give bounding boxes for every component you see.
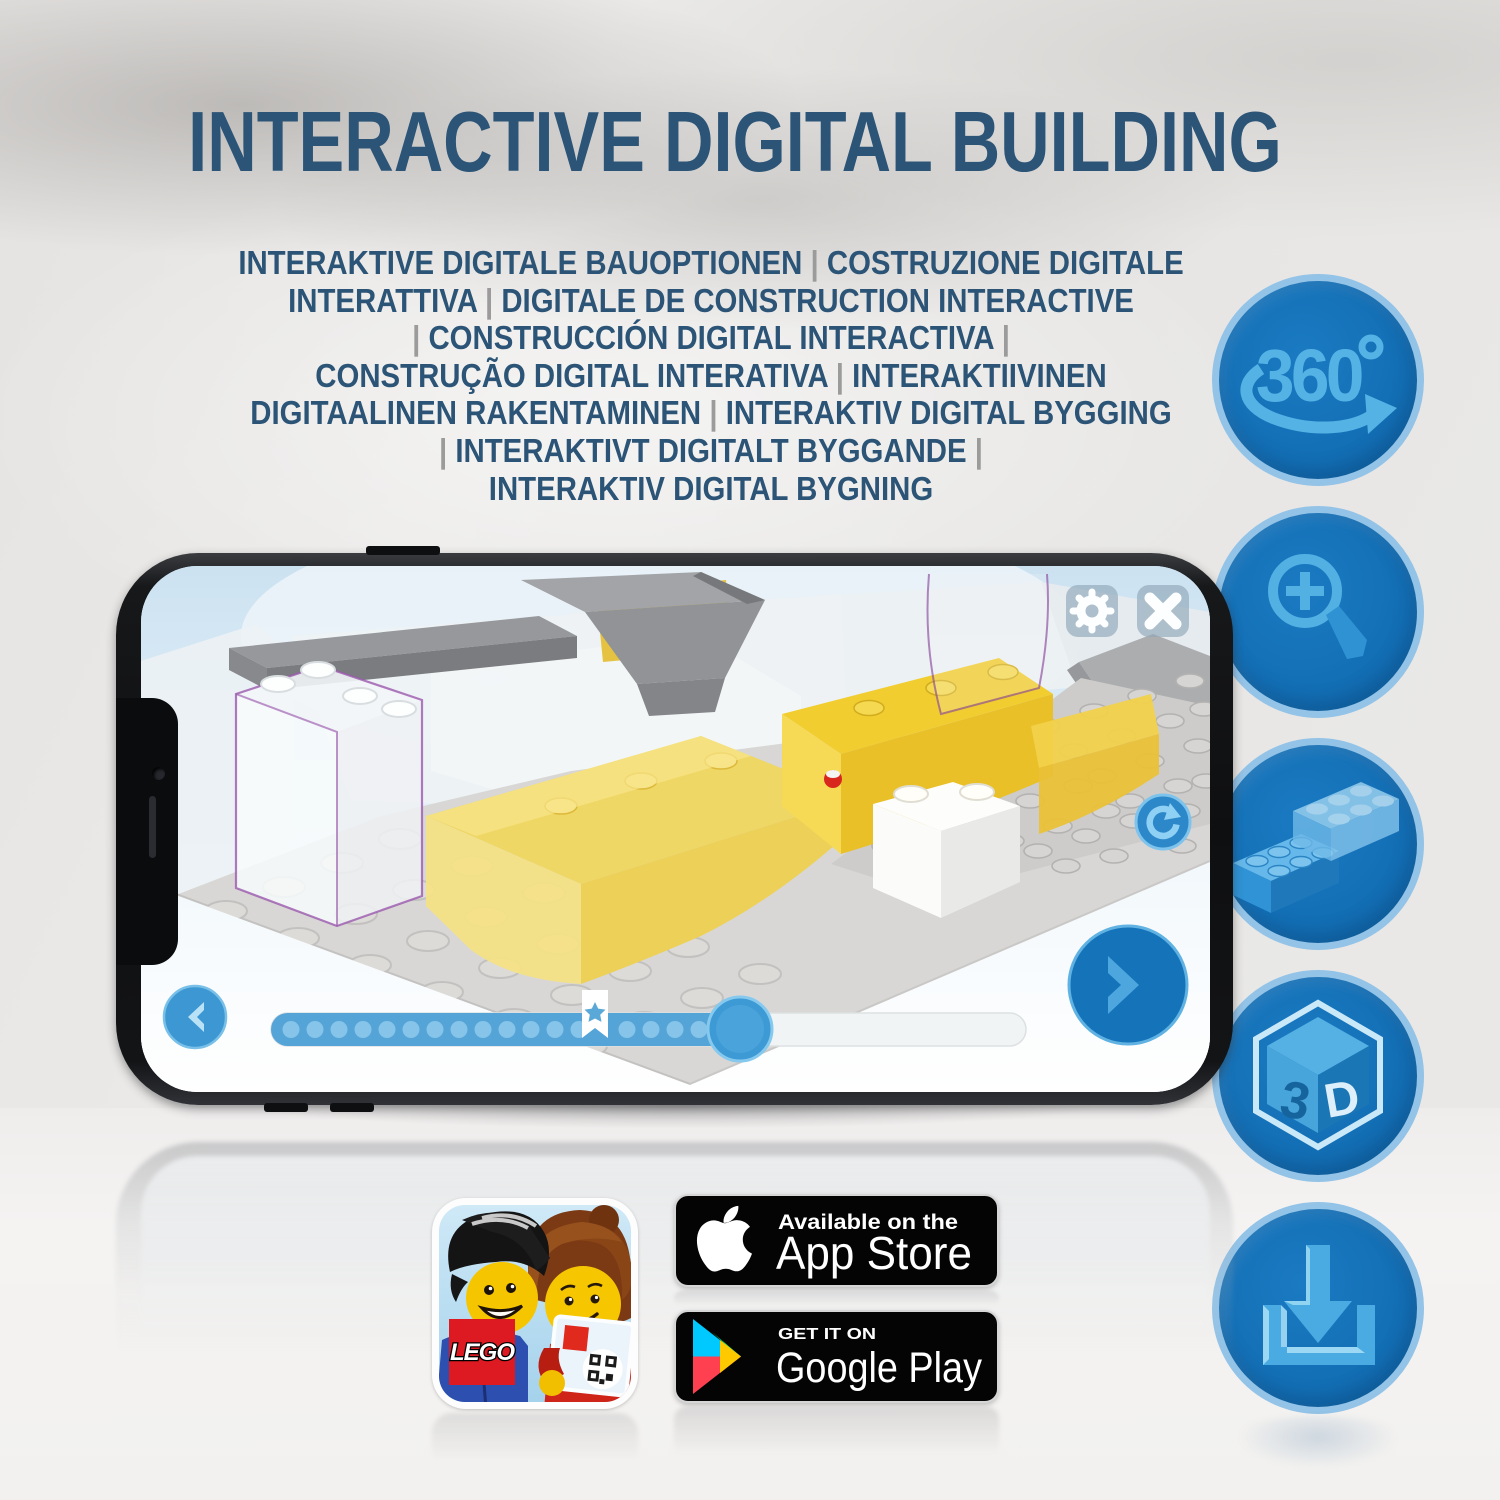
svg-text:GET IT ON: GET IT ON xyxy=(778,1326,876,1343)
svg-text:LEGO: LEGO xyxy=(450,1339,515,1366)
svg-text:App Store: App Store xyxy=(776,1227,972,1279)
svg-text:Google Play: Google Play xyxy=(776,1344,982,1392)
svg-text:360: 360 xyxy=(1256,335,1362,417)
